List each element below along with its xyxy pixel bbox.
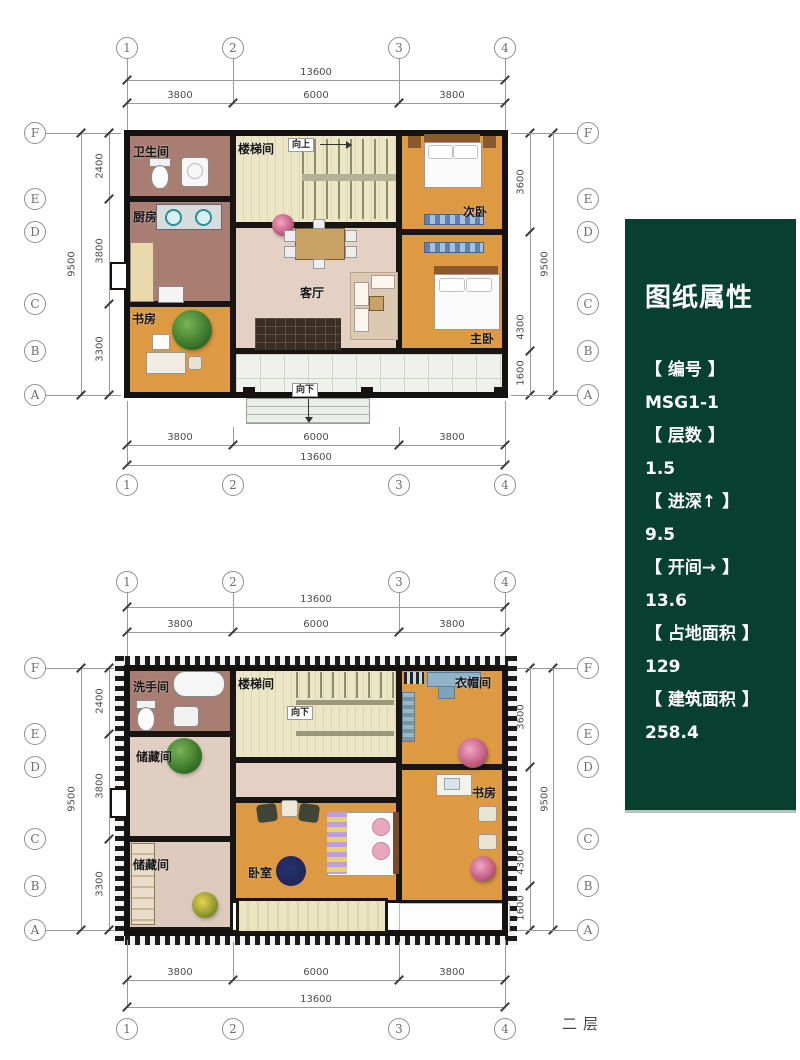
- dim-label: 2400: [95, 153, 106, 178]
- grid-row-label: E: [31, 727, 40, 741]
- grid-bubble-row: F: [577, 122, 599, 144]
- property-label: 【 占地面积 】: [645, 618, 796, 651]
- grid-leader-line: [127, 401, 128, 465]
- grid-col-label: 1: [123, 41, 131, 55]
- dim-label: 9500: [67, 786, 78, 811]
- room-label: 卫生间: [133, 143, 169, 160]
- grid-leader-line: [511, 133, 577, 134]
- dim-label: 9500: [540, 786, 551, 811]
- grid-bubble-col: 2: [222, 474, 244, 496]
- dim-label: 3800: [167, 619, 192, 630]
- room-label: 主卧: [470, 330, 494, 347]
- dim-label: 13600: [300, 594, 332, 605]
- grid-bubble-col: 3: [388, 37, 410, 59]
- fireplace-icon: [255, 318, 341, 350]
- grid-bubble-row: D: [577, 221, 599, 243]
- grid-bubble-col: 2: [222, 1018, 244, 1040]
- grid-col-label: 3: [395, 41, 403, 55]
- property-label: 【 开间→ 】: [645, 552, 796, 585]
- grid-col-label: 4: [501, 1022, 509, 1036]
- dim-label: 6000: [303, 432, 328, 443]
- dim-label: 3800: [439, 90, 464, 101]
- grid-leader-line: [127, 59, 128, 133]
- room-label: 储藏间: [136, 748, 172, 765]
- coffee-table-icon: [369, 296, 384, 311]
- pillow-icon: [372, 818, 390, 836]
- grid-leader-line: [399, 59, 400, 103]
- grid-col-label: 3: [395, 575, 403, 589]
- grid-bubble-row: A: [24, 384, 46, 406]
- dim-line: [553, 668, 554, 930]
- grid-row-label: B: [584, 344, 593, 358]
- grid-row-label: A: [31, 388, 40, 402]
- grid-leader-line: [511, 395, 577, 396]
- grid-leader-line: [399, 942, 400, 980]
- pillow-icon: [428, 145, 453, 159]
- dim-label: 3800: [95, 238, 106, 263]
- dim-label: 13600: [300, 67, 332, 78]
- panel-title: 图纸属性: [645, 277, 796, 314]
- dim-line: [127, 1007, 505, 1008]
- kitchen-counter-icon: [130, 242, 154, 302]
- monitor-icon: [152, 334, 170, 350]
- grid-row-label: F: [584, 661, 592, 675]
- room-label: 书房: [132, 310, 156, 327]
- grid-bubble-row: B: [24, 875, 46, 897]
- property-value: 9.5: [645, 519, 796, 552]
- bed-blanket-icon: [327, 812, 347, 874]
- entry-direction-label: 向下: [292, 383, 318, 397]
- nightstand-icon: [408, 136, 421, 148]
- grid-bubble-row: D: [24, 756, 46, 778]
- nightstand-icon: [483, 136, 496, 148]
- grid-row-label: A: [584, 923, 593, 937]
- property-label: 【 进深↑ 】: [645, 486, 796, 519]
- roof-corner: [399, 903, 510, 932]
- room-label: 次卧: [463, 203, 487, 220]
- stool-icon: [438, 686, 455, 699]
- pillow-icon: [439, 278, 465, 292]
- stair-direction-text: 向下: [291, 708, 309, 718]
- grid-bubble-row: C: [24, 828, 46, 850]
- dim-line: [127, 980, 505, 981]
- grid-row-label: F: [31, 661, 39, 675]
- dim-label: 1600: [516, 360, 527, 385]
- dim-label: 9500: [540, 251, 551, 276]
- dim-label: 6000: [303, 967, 328, 978]
- sink-icon: [173, 706, 199, 727]
- grid-row-label: B: [584, 879, 593, 893]
- grid-bubble-col: 1: [116, 37, 138, 59]
- grid-col-label: 4: [501, 575, 509, 589]
- bed-headboard-icon: [393, 812, 399, 874]
- grid-bubble-row: C: [577, 293, 599, 315]
- grid-bubble-row: E: [577, 188, 599, 210]
- sofa-icon: [371, 275, 395, 289]
- dim-label: 3800: [439, 619, 464, 630]
- bed-headboard-icon: [424, 134, 480, 142]
- dim-label: 3800: [167, 967, 192, 978]
- grid-row-label: D: [30, 225, 40, 239]
- lounge-chair-icon: [256, 803, 278, 824]
- grid-row-label: E: [31, 192, 40, 206]
- roof-edge: [115, 936, 517, 945]
- grid-row-label: C: [583, 297, 592, 311]
- grid-bubble-col: 4: [494, 474, 516, 496]
- wardrobe-icon: [402, 692, 415, 742]
- stair-direction-arrow: [320, 144, 346, 145]
- dim-label: 9500: [67, 251, 78, 276]
- dim-line: [127, 465, 505, 466]
- grid-bubble-row: C: [24, 293, 46, 315]
- grid-bubble-row: F: [577, 657, 599, 679]
- grid-bubble-row: A: [577, 919, 599, 941]
- dim-line: [530, 133, 531, 395]
- grid-row-label: B: [31, 879, 40, 893]
- grid-bubble-row: E: [577, 723, 599, 745]
- dim-label: 3800: [167, 432, 192, 443]
- chair-icon: [188, 356, 202, 370]
- toilet-icon: [137, 707, 155, 731]
- dim-line: [127, 80, 505, 81]
- bathtub-icon: [173, 671, 225, 697]
- grid-bubble-col: 2: [222, 571, 244, 593]
- grid-leader-line: [517, 668, 577, 669]
- dim-line: [553, 133, 554, 395]
- dim-label: 3800: [95, 773, 106, 798]
- room-label: 储藏间: [133, 856, 169, 873]
- bed-headboard-icon: [434, 266, 498, 274]
- flower-plant-icon: [458, 738, 488, 768]
- stair-direction-label: 向下: [287, 706, 313, 720]
- grid-row-label: D: [30, 760, 40, 774]
- grid-bubble-col: 1: [116, 1018, 138, 1040]
- grid-row-label: C: [583, 832, 592, 846]
- stair-direction-arrowhead: [346, 141, 352, 149]
- grid-leader-line: [127, 940, 128, 1007]
- dim-line: [530, 668, 531, 930]
- dim-line: [81, 133, 82, 395]
- grid-bubble-row: F: [24, 657, 46, 679]
- grid-bubble-row: B: [577, 875, 599, 897]
- property-value: 13.6: [645, 585, 796, 618]
- room-label: 洗手间: [133, 678, 169, 695]
- hall-f2: [233, 760, 399, 800]
- grid-bubble-row: A: [577, 384, 599, 406]
- property-label: 【 建筑面积 】: [645, 684, 796, 717]
- drawing-properties-panel: 图纸属性 【 编号 】 MSG1-1 【 层数 】 1.5 【 进深↑ 】 9.…: [625, 219, 796, 810]
- grid-bubble-col: 4: [494, 1018, 516, 1040]
- room-label: 厨房: [133, 208, 157, 225]
- entry-arrowhead: [305, 417, 313, 423]
- chair-icon: [284, 246, 296, 258]
- porch-post-icon: [361, 387, 373, 396]
- grid-leader-line: [399, 593, 400, 632]
- dim-line: [127, 103, 505, 104]
- chair-icon: [284, 230, 296, 242]
- grid-leader-line: [505, 59, 506, 133]
- grid-bubble-row: C: [577, 828, 599, 850]
- property-value: 258.4: [645, 717, 796, 750]
- rug-icon: [424, 242, 484, 253]
- grid-bubble-row: D: [577, 756, 599, 778]
- property-label: 【 层数 】: [645, 420, 796, 453]
- grid-bubble-col: 1: [116, 571, 138, 593]
- grid-bubble-row: D: [24, 221, 46, 243]
- stair-direction-text: 向上: [292, 140, 310, 150]
- chair-icon: [478, 806, 497, 822]
- stair-direction-label: 向上: [288, 138, 314, 152]
- round-rug-icon: [276, 856, 306, 886]
- grid-leader-line: [505, 940, 506, 1007]
- toilet-icon: [151, 165, 169, 189]
- sofa-icon: [354, 308, 369, 332]
- pillow-icon: [466, 278, 492, 292]
- chair-icon: [313, 259, 325, 269]
- dim-label: 3600: [516, 704, 527, 729]
- dim-label: 6000: [303, 90, 328, 101]
- plant-icon: [192, 892, 218, 918]
- grid-bubble-col: 2: [222, 37, 244, 59]
- grid-bubble-row: F: [24, 122, 46, 144]
- dim-line: [127, 632, 505, 633]
- dim-line: [127, 445, 505, 446]
- grid-leader-line: [505, 401, 506, 465]
- grid-row-label: A: [584, 388, 593, 402]
- chair-icon: [345, 230, 357, 242]
- plant-icon: [172, 310, 212, 350]
- grid-bubble-col: 4: [494, 37, 516, 59]
- roof-edge: [115, 656, 517, 665]
- grid-bubble-row: B: [577, 340, 599, 362]
- floor2-caption: 二层: [562, 1013, 604, 1034]
- grid-col-label: 1: [123, 478, 131, 492]
- grid-bubble-col: 4: [494, 571, 516, 593]
- stair-landing-icon: [302, 174, 396, 181]
- grid-row-label: E: [584, 192, 593, 206]
- sofa-icon: [354, 282, 369, 306]
- entry-arrow: [308, 399, 309, 417]
- chair-icon: [313, 219, 325, 229]
- entry-direction-text: 向下: [296, 385, 314, 395]
- dim-line: [127, 607, 505, 608]
- panel-items: 【 编号 】 MSG1-1 【 层数 】 1.5 【 进深↑ 】 9.5 【 开…: [645, 354, 796, 750]
- grid-col-label: 3: [395, 478, 403, 492]
- grid-row-label: D: [583, 225, 593, 239]
- porch-post-icon: [494, 387, 506, 396]
- porch-post-icon: [243, 387, 255, 396]
- lounge-chair-icon: [298, 803, 320, 824]
- dim-label: 4300: [516, 849, 527, 874]
- grid-bubble-col: 1: [116, 474, 138, 496]
- grid-col-label: 2: [229, 1022, 237, 1036]
- grid-bubble-col: 3: [388, 571, 410, 593]
- sink-icon: [158, 286, 184, 303]
- grid-bubble-row: B: [24, 340, 46, 362]
- room-label: 卧室: [248, 864, 272, 881]
- blueprint-sheet: 1 2 3 4 13600 3800 6000 3800 F E D C B A…: [0, 0, 800, 1060]
- stair-rail-icon: [296, 700, 394, 705]
- dim-label: 1600: [516, 895, 527, 920]
- side-table-icon: [281, 800, 298, 817]
- chimney-icon: [110, 262, 128, 290]
- balcony-f2: [236, 898, 388, 934]
- stair-rail-icon: [296, 731, 394, 736]
- chimney-icon: [110, 788, 128, 818]
- property-value: 129: [645, 651, 796, 684]
- grid-col-label: 2: [229, 575, 237, 589]
- grid-bubble-row: E: [24, 723, 46, 745]
- dim-label: 3300: [95, 336, 106, 361]
- grid-col-label: 4: [501, 478, 509, 492]
- grid-bubble-row: A: [24, 919, 46, 941]
- grid-col-label: 2: [229, 478, 237, 492]
- grid-leader-line: [127, 593, 128, 656]
- desk-icon: [146, 352, 186, 374]
- grid-leader-line: [233, 593, 234, 632]
- washer-drum-icon: [187, 163, 203, 179]
- grid-row-label: C: [30, 297, 39, 311]
- pillow-icon: [453, 145, 478, 159]
- grid-col-label: 3: [395, 1022, 403, 1036]
- grid-leader-line: [517, 930, 577, 931]
- grid-row-label: F: [584, 126, 592, 140]
- grid-col-label: 4: [501, 41, 509, 55]
- room-label: 楼梯间: [238, 140, 274, 157]
- dim-label: 3800: [439, 967, 464, 978]
- wardrobe-unit-icon: [404, 672, 424, 684]
- grid-leader-line: [233, 942, 234, 980]
- grid-leader-line: [233, 59, 234, 103]
- grid-row-label: C: [30, 832, 39, 846]
- room-label: 衣帽间: [455, 674, 491, 691]
- grid-leader-line: [505, 593, 506, 656]
- burner-icon: [165, 209, 182, 226]
- dim-label: 6000: [303, 619, 328, 630]
- grid-col-label: 1: [123, 575, 131, 589]
- dim-line: [81, 668, 82, 930]
- burner-icon: [195, 209, 212, 226]
- chair-icon: [478, 834, 497, 850]
- dim-label: 13600: [300, 452, 332, 463]
- grid-row-label: B: [31, 344, 40, 358]
- dim-label: 3300: [95, 871, 106, 896]
- roof-edge: [508, 656, 517, 945]
- flower-plant-icon: [470, 856, 496, 882]
- room-label: 楼梯间: [238, 675, 274, 692]
- grid-col-label: 2: [229, 41, 237, 55]
- room-label: 书房: [472, 784, 496, 801]
- room-label: 客厅: [300, 284, 324, 301]
- grid-row-label: A: [31, 923, 40, 937]
- grid-bubble-row: E: [24, 188, 46, 210]
- grid-bubble-col: 3: [388, 474, 410, 496]
- property-value: 1.5: [645, 453, 796, 486]
- grid-row-label: F: [31, 126, 39, 140]
- grid-row-label: D: [583, 760, 593, 774]
- dim-label: 3800: [439, 432, 464, 443]
- grid-row-label: E: [584, 727, 593, 741]
- dim-label: 13600: [300, 994, 332, 1005]
- dim-label: 3600: [516, 169, 527, 194]
- laptop-icon: [444, 778, 460, 790]
- property-label: 【 编号 】: [645, 354, 796, 387]
- dim-label: 4300: [516, 314, 527, 339]
- grid-col-label: 1: [123, 1022, 131, 1036]
- dim-label: 3800: [167, 90, 192, 101]
- stairs-icon: [296, 672, 394, 698]
- grid-bubble-col: 3: [388, 1018, 410, 1040]
- dim-label: 2400: [95, 688, 106, 713]
- pillow-icon: [372, 842, 390, 860]
- chair-icon: [345, 246, 357, 258]
- property-value: MSG1-1: [645, 387, 796, 420]
- dining-table-icon: [295, 228, 345, 260]
